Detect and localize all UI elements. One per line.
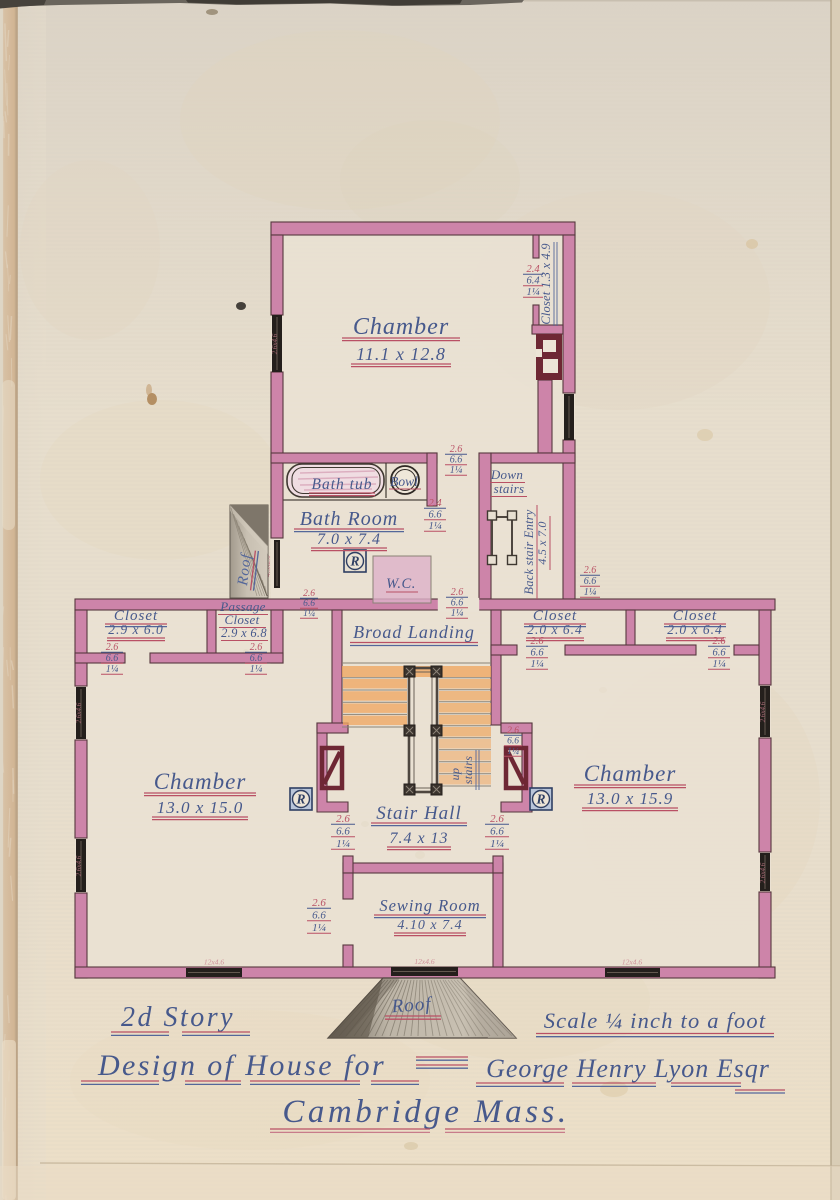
- svg-text:1¼: 1¼: [312, 922, 326, 934]
- svg-text:6.6: 6.6: [451, 598, 464, 609]
- svg-text:Sewing Room: Sewing Room: [379, 896, 480, 915]
- svg-text:R: R: [349, 554, 359, 569]
- svg-text:2.0 x 6.4: 2.0 x 6.4: [667, 622, 723, 637]
- svg-text:6.6: 6.6: [303, 599, 315, 609]
- svg-text:6.6: 6.6: [530, 648, 544, 659]
- svg-text:6.6: 6.6: [250, 653, 263, 664]
- svg-text:Back stair Entry: Back stair Entry: [522, 509, 536, 594]
- svg-text:13.0 x 15.0: 13.0 x 15.0: [157, 798, 244, 817]
- svg-text:Chamber: Chamber: [154, 769, 247, 794]
- svg-text:1¼: 1¼: [507, 746, 519, 757]
- svg-text:1¼: 1¼: [490, 838, 504, 850]
- svg-text:Broad Landing: Broad Landing: [353, 622, 475, 642]
- svg-text:2.4: 2.4: [526, 264, 540, 275]
- svg-text:12x4.6: 12x4.6: [622, 958, 642, 967]
- svg-text:2.6x4.6: 2.6x4.6: [759, 701, 767, 722]
- svg-text:6.6: 6.6: [336, 826, 350, 838]
- svg-text:Closet: Closet: [224, 612, 259, 627]
- svg-text:Cambridge Mass.: Cambridge Mass.: [282, 1094, 569, 1130]
- svg-text:1¼: 1¼: [336, 838, 350, 850]
- svg-text:2.0 x 6.4: 2.0 x 6.4: [527, 622, 583, 637]
- svg-text:6.6: 6.6: [507, 737, 519, 747]
- svg-text:up: up: [448, 768, 462, 781]
- svg-text:6.6: 6.6: [450, 455, 463, 466]
- svg-text:Bowl: Bowl: [390, 474, 418, 489]
- svg-text:12x4.6: 12x4.6: [414, 957, 434, 966]
- svg-text:1¼: 1¼: [106, 664, 119, 675]
- svg-text:R: R: [295, 792, 305, 807]
- svg-text:W.C.: W.C.: [386, 576, 416, 592]
- svg-text:6.6: 6.6: [584, 576, 597, 587]
- svg-text:2.6x4.6: 2.6x4.6: [75, 702, 83, 723]
- svg-text:1¼: 1¼: [530, 659, 543, 670]
- svg-text:2.6x4.6: 2.6x4.6: [271, 333, 279, 354]
- svg-text:2.4: 2.4: [428, 498, 442, 509]
- svg-text:stairs: stairs: [461, 756, 475, 785]
- svg-text:13.0 x 15.9: 13.0 x 15.9: [587, 789, 674, 808]
- svg-text:6.6: 6.6: [312, 910, 326, 922]
- svg-text:Scale ¼ inch to a foot: Scale ¼ inch to a foot: [544, 1008, 767, 1033]
- svg-text:2.6: 2.6: [450, 444, 463, 455]
- svg-text:4.5 x 7.0: 4.5 x 7.0: [535, 521, 549, 564]
- svg-text:2.6: 2.6: [106, 642, 119, 653]
- svg-text:George Henry Lyon Esqr: George Henry Lyon Esqr: [486, 1054, 770, 1083]
- svg-text:7.4 x 13: 7.4 x 13: [389, 830, 448, 847]
- svg-text:1¼: 1¼: [451, 608, 464, 619]
- svg-text:2.6: 2.6: [507, 726, 519, 736]
- svg-text:Chamber: Chamber: [584, 761, 677, 786]
- svg-text:2.6x4.6: 2.6x4.6: [759, 862, 767, 883]
- svg-text:2d Story: 2d Story: [121, 1002, 235, 1033]
- svg-text:1¼: 1¼: [526, 287, 539, 298]
- svg-text:2.6: 2.6: [451, 587, 464, 598]
- svg-text:6.6: 6.6: [106, 653, 119, 664]
- svg-text:Bath tub: Bath tub: [312, 476, 373, 493]
- svg-text:1¼: 1¼: [428, 521, 441, 532]
- svg-text:4.10 x 7.4: 4.10 x 7.4: [397, 918, 462, 933]
- svg-text:2.6: 2.6: [312, 897, 326, 909]
- svg-text:12x4.6: 12x4.6: [204, 958, 224, 967]
- svg-text:2.6: 2.6: [250, 642, 263, 653]
- svg-text:1¼: 1¼: [450, 465, 463, 476]
- svg-text:2.6: 2.6: [712, 636, 726, 647]
- svg-text:2.6: 2.6: [584, 565, 597, 576]
- svg-text:2.6: 2.6: [490, 813, 504, 825]
- svg-text:Closet 1.3 x 4.9: Closet 1.3 x 4.9: [539, 243, 553, 325]
- svg-text:2.6: 2.6: [336, 813, 350, 825]
- svg-text:2.6: 2.6: [303, 589, 315, 599]
- svg-text:1¼: 1¼: [712, 659, 725, 670]
- svg-text:6.6: 6.6: [490, 826, 504, 838]
- svg-text:1¼: 1¼: [303, 608, 315, 619]
- svg-text:6.6: 6.6: [428, 510, 442, 521]
- svg-text:Chamber: Chamber: [353, 314, 449, 340]
- svg-text:6.6: 6.6: [712, 648, 726, 659]
- svg-text:Bath Room: Bath Room: [300, 508, 398, 530]
- svg-text:Stair Hall: Stair Hall: [376, 803, 461, 824]
- svg-text:1¼: 1¼: [250, 664, 263, 675]
- svg-text:Design of House for: Design of House for: [97, 1049, 386, 1082]
- svg-text:stairs: stairs: [494, 481, 525, 496]
- svg-text:Down: Down: [490, 467, 523, 482]
- svg-text:2.9 x 6.0: 2.9 x 6.0: [108, 622, 164, 637]
- svg-text:R: R: [535, 792, 545, 807]
- svg-text:11.1 x 12.8: 11.1 x 12.8: [356, 344, 446, 364]
- svg-text:2.6x4.6: 2.6x4.6: [75, 855, 83, 876]
- svg-text:Roof: Roof: [390, 994, 434, 1018]
- svg-text:2.9 x 6.8: 2.9 x 6.8: [221, 626, 267, 640]
- svg-text:7.0 x 7.4: 7.0 x 7.4: [317, 531, 381, 548]
- svg-text:1¼: 1¼: [584, 587, 597, 598]
- svg-text:2.6: 2.6: [530, 636, 544, 647]
- svg-text:6.4: 6.4: [526, 276, 540, 287]
